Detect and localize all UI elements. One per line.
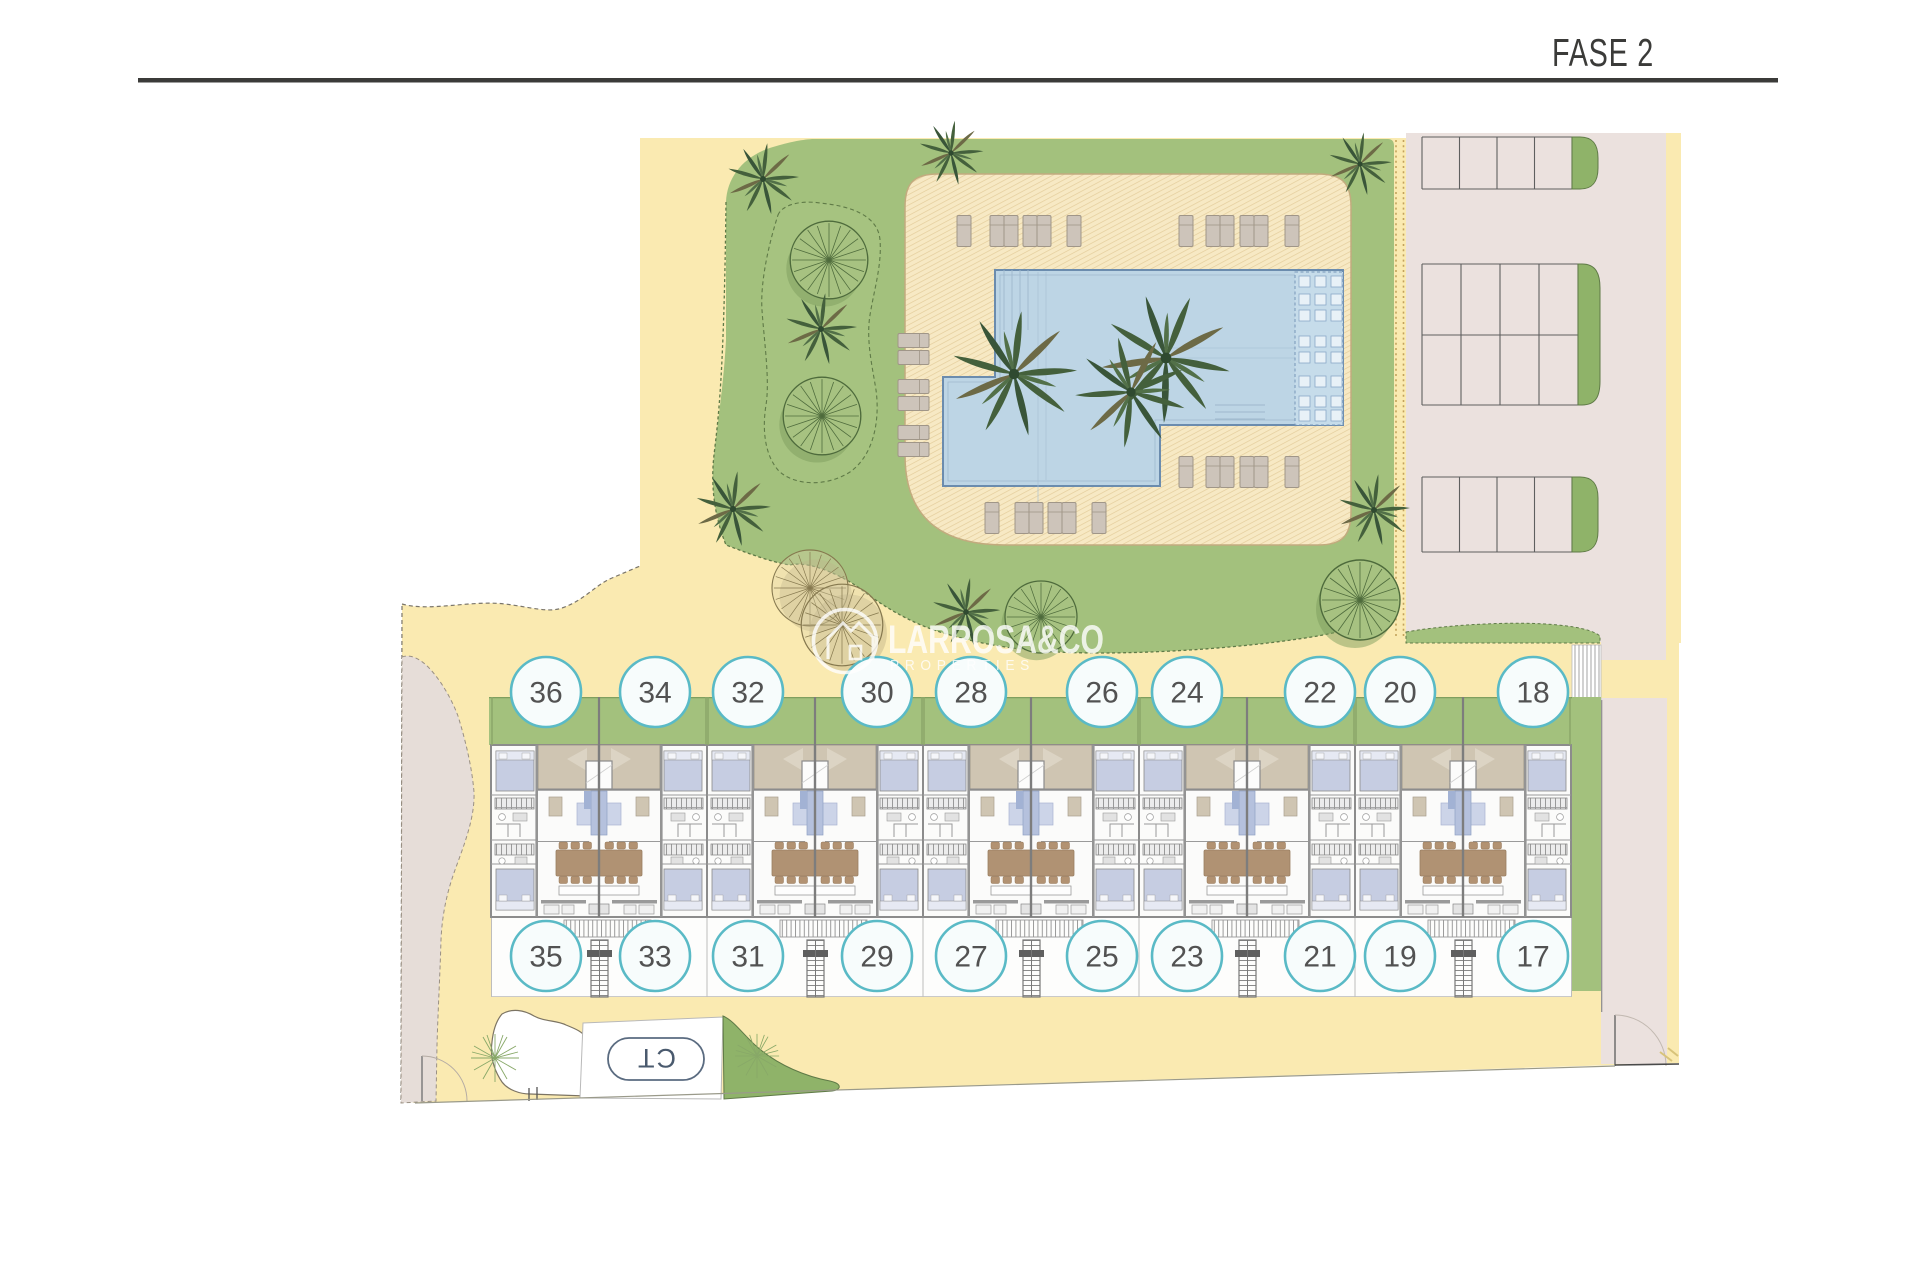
svg-text:18: 18 <box>1516 677 1549 710</box>
svg-text:21: 21 <box>1303 941 1336 974</box>
svg-text:23: 23 <box>1170 941 1203 974</box>
svg-text:26: 26 <box>1085 677 1118 710</box>
svg-text:22: 22 <box>1303 677 1336 710</box>
svg-text:30: 30 <box>860 677 893 710</box>
svg-text:28: 28 <box>954 677 987 710</box>
svg-text:PROPERTIES: PROPERTIES <box>890 658 1035 674</box>
svg-text:34: 34 <box>638 677 671 710</box>
svg-text:25: 25 <box>1085 941 1118 974</box>
svg-text:LARROSA&CO: LARROSA&CO <box>888 618 1104 662</box>
svg-text:36: 36 <box>529 677 562 710</box>
svg-text:20: 20 <box>1383 677 1416 710</box>
svg-text:27: 27 <box>954 941 987 974</box>
svg-text:19: 19 <box>1383 941 1416 974</box>
svg-text:33: 33 <box>638 941 671 974</box>
svg-text:17: 17 <box>1516 941 1549 974</box>
svg-text:24: 24 <box>1170 677 1203 710</box>
svg-text:CT: CT <box>636 1043 676 1073</box>
svg-text:35: 35 <box>529 941 562 974</box>
svg-text:32: 32 <box>731 677 764 710</box>
svg-text:FASE 2: FASE 2 <box>1552 32 1654 75</box>
svg-text:29: 29 <box>860 941 893 974</box>
svg-text:31: 31 <box>731 941 764 974</box>
